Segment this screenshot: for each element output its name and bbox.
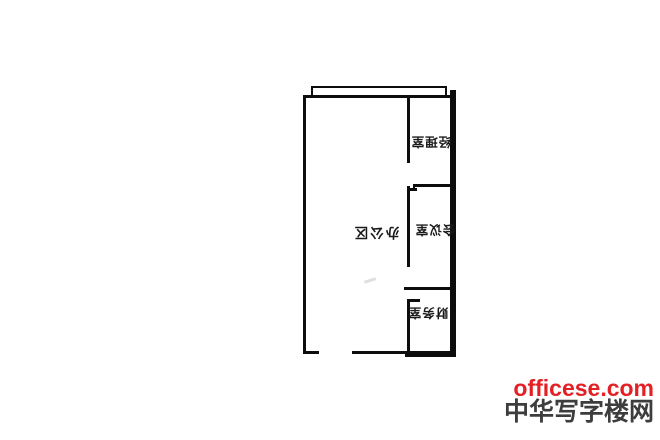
wall-top — [303, 95, 456, 98]
divider-manager-meeting-step — [413, 184, 415, 191]
watermark: officese.com 中华写字楼网 — [504, 377, 654, 425]
room-label-manager-room: 经理室 — [411, 134, 452, 153]
wall-bottom-middle — [352, 351, 408, 354]
wall-bottom-left-foot — [303, 351, 319, 354]
room-label-finance-room: 财务室 — [408, 305, 449, 324]
scan-artifact-mark — [364, 277, 376, 284]
divider-meeting-finance — [404, 287, 451, 290]
partition-meeting-room — [407, 186, 410, 267]
room-label-office-area: 办公区 — [353, 224, 400, 244]
room-label-meeting-room: 会议室 — [415, 222, 456, 241]
floor-plan-canvas: 办公区 经理室 会议室 财务室 officese.com 中华写字楼网 — [0, 0, 660, 440]
wall-bottom-right-thick — [405, 351, 456, 357]
watermark-site-url: officese.com — [504, 377, 654, 400]
watermark-portal-name: 中华写字楼网 — [504, 400, 654, 425]
wall-left — [303, 95, 306, 354]
partition-manager-room — [407, 97, 410, 163]
divider-manager-meeting — [414, 184, 451, 187]
